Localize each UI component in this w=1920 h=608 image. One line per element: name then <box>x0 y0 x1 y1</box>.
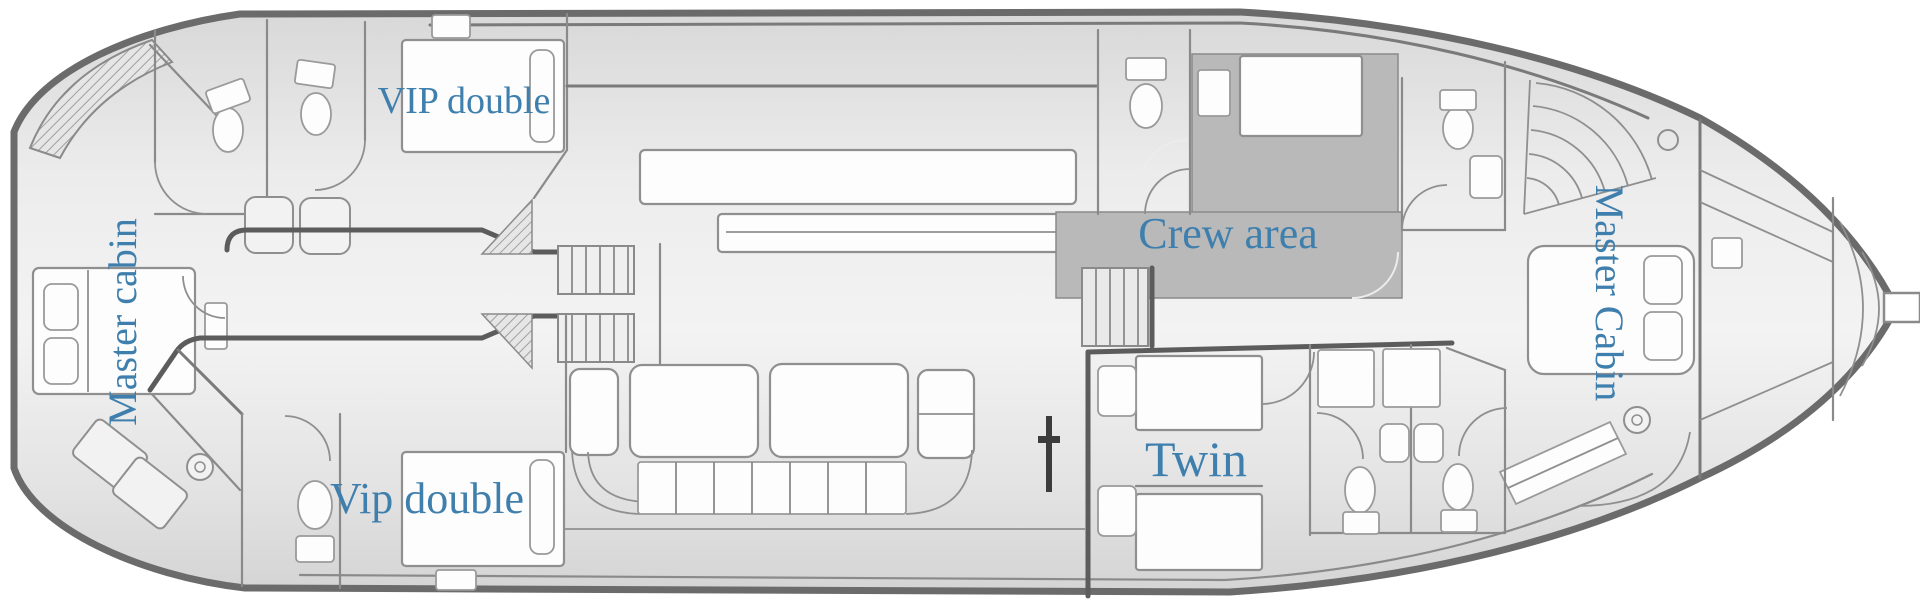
sink-icon <box>295 59 336 88</box>
pillow-icon <box>1644 312 1682 360</box>
bow-hatch-icon <box>1712 238 1742 268</box>
toilet-icon <box>1440 90 1476 149</box>
label-vip-double-bottom: Vip double <box>330 474 524 523</box>
label-vip-double-top: VIP double <box>378 80 551 122</box>
label-crew-area: Crew area <box>1138 209 1318 258</box>
bed-icon <box>1240 56 1362 136</box>
label-master-cabin-left: Master cabin <box>100 218 145 426</box>
toilet-icon <box>296 481 334 562</box>
pillow-icon <box>1644 256 1682 304</box>
label-master-cabin-right: Master Cabin <box>1587 185 1632 402</box>
label-twin: Twin <box>1145 431 1247 487</box>
stool-icon <box>1624 407 1650 433</box>
stairs-icon <box>1082 268 1152 346</box>
armchair-icon <box>300 198 350 254</box>
galley-counter <box>640 150 1076 204</box>
shower-icon <box>1318 350 1374 407</box>
pillow-icon <box>44 338 78 384</box>
armchair-icon <box>245 197 293 253</box>
nightstand-icon <box>436 570 476 590</box>
nightstand-icon <box>1098 486 1136 536</box>
stairs-icon <box>558 246 634 294</box>
sink-icon <box>1380 424 1409 462</box>
bed-icon <box>1136 494 1262 570</box>
bowsprit <box>1884 293 1920 322</box>
deck-plan-drawing: VIP double Master cabin Crew area Twin V… <box>0 0 1920 608</box>
pillow-icon <box>530 460 554 554</box>
sink-icon <box>1470 156 1502 198</box>
bed-icon <box>1136 356 1262 430</box>
shower-icon <box>1383 349 1440 407</box>
dinette-table <box>718 214 1076 252</box>
nightstand-icon <box>1198 70 1230 116</box>
pillow-icon <box>44 284 78 330</box>
stool-icon <box>187 454 213 480</box>
nightstand-icon <box>205 303 227 349</box>
nightstand-icon <box>1098 366 1136 416</box>
stairs-icon <box>558 314 634 362</box>
sink-icon <box>1414 424 1443 462</box>
nightstand-icon <box>432 15 470 38</box>
yacht-deck-plan: VIP double Master cabin Crew area Twin V… <box>0 0 1920 608</box>
